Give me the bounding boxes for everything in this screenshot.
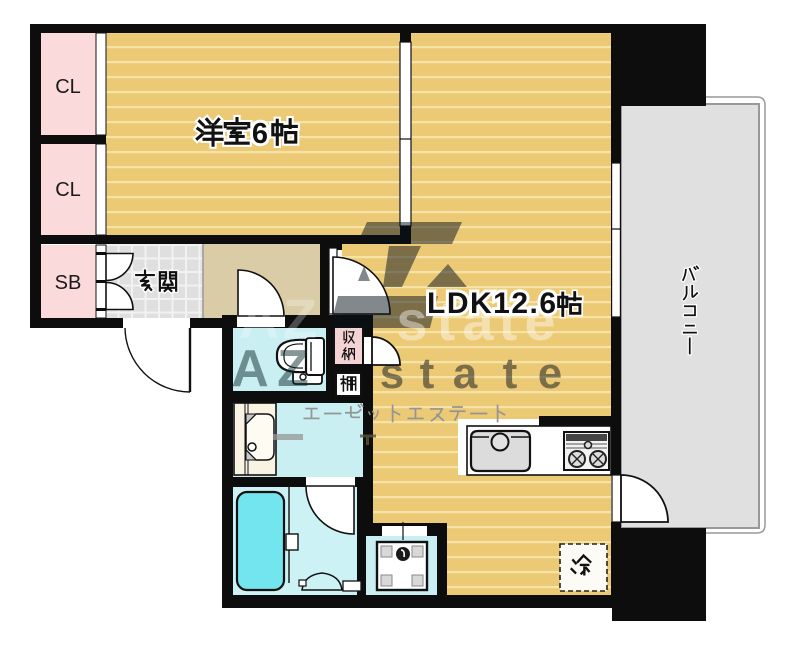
svg-text:Z: Z <box>277 340 309 398</box>
svg-text:CL: CL <box>55 76 81 98</box>
svg-text:t: t <box>503 349 518 398</box>
svg-text:e: e <box>538 349 562 398</box>
svg-text:A: A <box>231 340 269 398</box>
svg-text:s: s <box>380 349 404 398</box>
svg-text:a: a <box>453 349 478 398</box>
svg-text:LDK12.6: LDK12.6 <box>427 287 558 320</box>
svg-text:CL: CL <box>55 179 81 201</box>
svg-text:s: s <box>396 289 427 352</box>
svg-text:t: t <box>420 349 435 398</box>
svg-text:SB: SB <box>55 272 82 294</box>
svg-text:6: 6 <box>252 118 268 150</box>
